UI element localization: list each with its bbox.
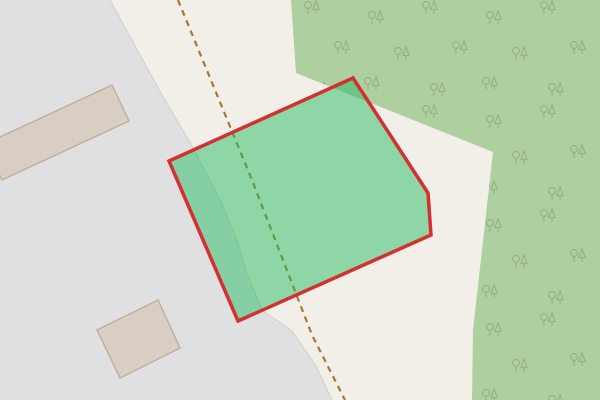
map-viewport[interactable] (0, 0, 600, 400)
map-canvas[interactable] (0, 0, 600, 400)
